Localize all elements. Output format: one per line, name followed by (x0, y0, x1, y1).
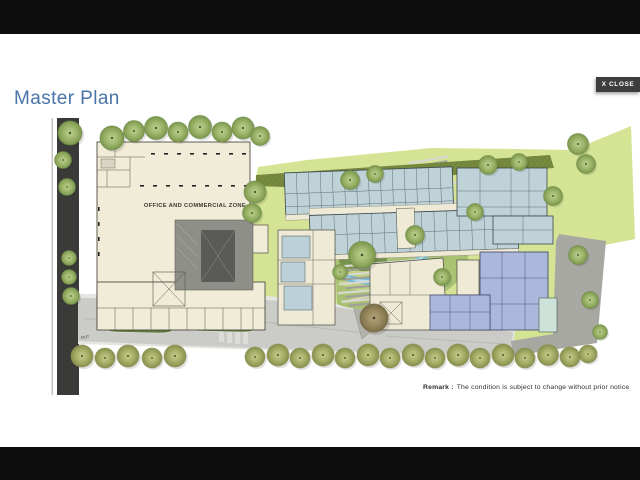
remark: Remark :The condition is subject to chan… (423, 384, 629, 391)
residential-left-cluster (278, 230, 335, 325)
letterbox-top (0, 0, 640, 34)
office-zone-label: OFFICE AND COMMERCIAL ZONE (144, 203, 246, 209)
close-button[interactable]: X CLOSE (596, 77, 640, 92)
page-title: Master Plan (14, 88, 120, 110)
road-edge-line (52, 118, 54, 395)
close-button-label: X CLOSE (602, 81, 635, 88)
master-plan-drawing: OFFICE AND COMMERCIAL ZONE (45, 112, 637, 395)
office-building: OFFICE AND COMMERCIAL ZONE (97, 142, 268, 330)
remark-label: Remark : (423, 384, 454, 391)
letterbox-bottom (0, 447, 640, 480)
aqua-block (539, 298, 557, 332)
remark-text: The condition is subject to change witho… (457, 384, 630, 391)
